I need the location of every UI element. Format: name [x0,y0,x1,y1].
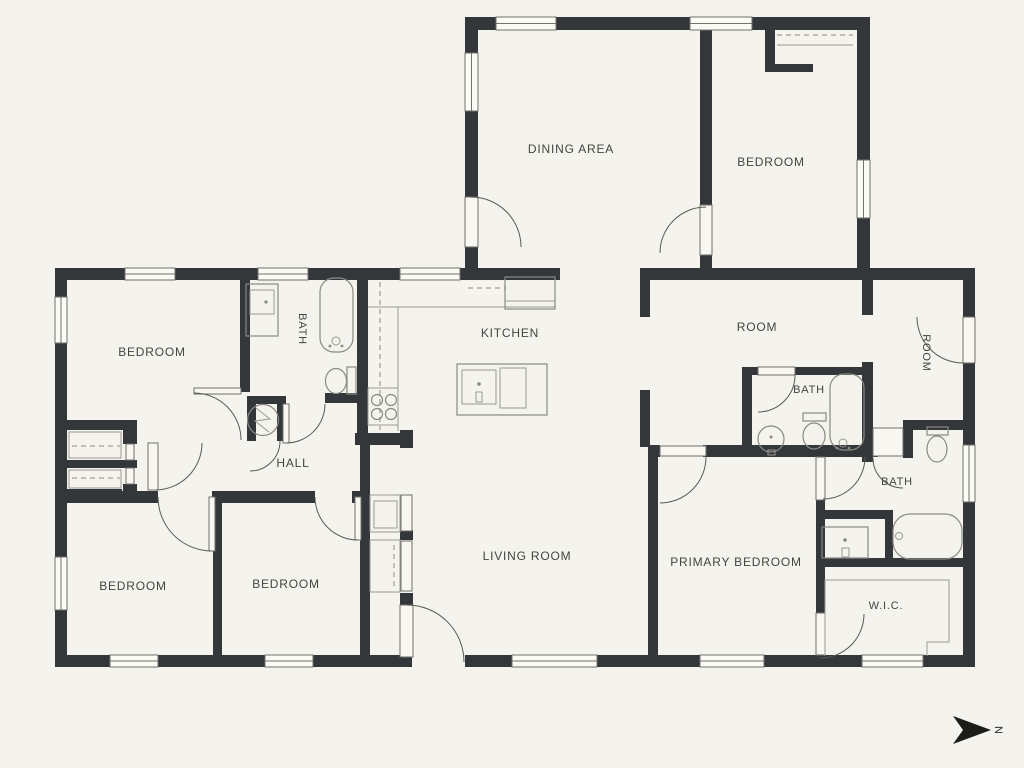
bathtub-icon [893,514,962,559]
room-label-room-center: ROOM [737,320,778,334]
room-label-living-room: LIVING ROOM [483,549,572,563]
room-label-kitchen: KITCHEN [481,326,539,340]
room-label-bath-lower: BATH [881,476,913,488]
range-stove-icon [368,388,398,425]
closet-shelf-icon [777,35,853,45]
toilet-icon [326,367,357,394]
room-label-bedroom-top: BEDROOM [737,155,805,169]
room-label-hall: HALL [276,456,309,470]
north-arrow-icon [953,716,991,744]
floor-plan-drawing [0,0,1024,768]
entry-closets [370,495,412,592]
vanity-sink-icon [822,527,868,558]
room-label-bath-upper: BATH [793,384,825,396]
vanity-sink-icon [246,284,278,336]
room-label-room-right: ROOM [920,334,932,371]
north-label: N [992,726,1004,734]
bathtub-icon [830,374,864,450]
room-label-wic: W.I.C. [869,600,904,612]
bathtub-icon [320,278,353,352]
toilet-icon [927,427,948,462]
windows-layer [55,17,975,667]
refrigerator-icon [505,277,555,309]
doors-layer [148,197,975,662]
room-label-dining-area: DINING AREA [528,142,614,156]
toilet-icon [803,413,826,449]
room-label-bedroom-left: BEDROOM [118,345,186,359]
floor-plan-canvas: DINING AREA BEDROOM BEDROOM BATH KITCHEN… [0,0,1024,768]
walk-in-closet-shelving [825,580,949,656]
room-label-bath-left: BATH [296,313,308,345]
room-label-bedroom-bl1: BEDROOM [99,579,167,593]
room-label-primary-bedroom: PRIMARY BEDROOM [670,555,802,569]
kitchen-counter [368,282,555,431]
kitchen-island-icon [457,364,547,415]
room-label-bedroom-bl2: BEDROOM [252,577,320,591]
walls-layer [55,17,975,667]
